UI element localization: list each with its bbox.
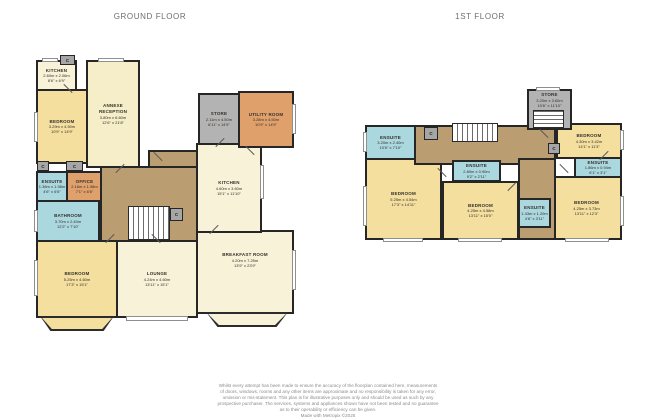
closet: C xyxy=(548,143,560,154)
staircase-ground xyxy=(128,206,170,240)
window xyxy=(620,130,624,150)
room-name: BEDROOM xyxy=(573,200,599,206)
window xyxy=(383,238,423,242)
window xyxy=(292,104,296,134)
closet-label: C xyxy=(175,212,178,217)
room-dim-imperial: 14'1" x 11'3" xyxy=(576,144,602,149)
room-dim-imperial: 6'11" x 14'9" xyxy=(206,122,232,127)
room-dim-imperial: 10'9" x 14'9" xyxy=(49,129,75,134)
floorplan-canvas: GROUND FLOOR 1ST FLOOR KITCHEN 2.60m x 2… xyxy=(0,0,656,420)
room-bedroom-left-1f: BEDROOM 5.25m x 4.54m 17'3" x 14'11" xyxy=(365,158,442,240)
room-name: BATHROOM xyxy=(54,213,82,219)
closet-label: C xyxy=(552,146,555,151)
room-name: KITCHEN xyxy=(216,180,242,186)
room-name: LOUNGE xyxy=(144,271,170,277)
room-dim-metric: 3.20m x 3.60m xyxy=(536,98,562,103)
window xyxy=(620,196,624,226)
window xyxy=(363,132,367,152)
closet: C xyxy=(170,208,183,221)
disclaimer: Whilst every attempt has been made to en… xyxy=(158,383,498,419)
room-dim-imperial: 6'1" x 3'1" xyxy=(585,170,611,175)
window xyxy=(565,238,609,242)
room-name: ENSUITE xyxy=(463,163,489,169)
closet: C xyxy=(37,161,49,171)
window xyxy=(260,165,264,199)
room-dim-imperial: 12'6" x 21'8" xyxy=(90,120,136,125)
window xyxy=(98,58,124,62)
closet-label: C xyxy=(429,131,432,136)
room-dim-imperial: 10'6" x 11'10" xyxy=(536,103,562,108)
room-office: OFFICE 2.16m x 1.98m 7'1" x 6'6" xyxy=(66,171,103,202)
room-ensuite-middle-1f: ENSUITE 2.80m x 0.90m 9'2" x 2'11" xyxy=(452,160,501,182)
staircase-store xyxy=(533,110,564,128)
room-bedroom-annexe: BEDROOM 3.29m x 4.50m 10'9" x 14'9" xyxy=(36,89,88,164)
closet: C xyxy=(60,55,75,65)
room-dim-imperial: 17'3" x 14'11" xyxy=(390,202,416,207)
room-name: BEDROOM xyxy=(576,133,602,139)
room-dim-imperial: 15'1" x 11'10" xyxy=(216,191,242,196)
room-dim-imperial: 13'11" x 15'0" xyxy=(467,213,493,218)
window xyxy=(536,87,560,91)
metropix-credit: Made with Metropix ©2025 xyxy=(158,413,498,419)
room-dim-imperial: 12'2" x 7'10" xyxy=(54,224,82,229)
closet-label: C xyxy=(41,164,44,169)
window xyxy=(34,260,38,296)
door-swing xyxy=(559,164,568,173)
room-name: BEDROOM xyxy=(390,191,416,197)
window xyxy=(458,238,502,242)
room-dim-imperial: 10'6" x 7'10" xyxy=(377,145,403,150)
window xyxy=(126,316,188,321)
staircase-1f xyxy=(452,123,498,142)
room-ensuite-left-1f: ENSUITE 3.20m x 2.40m 10'6" x 7'10" xyxy=(365,125,416,160)
room-dim-imperial: 13'11" x 15'1" xyxy=(144,282,170,287)
room-dim-imperial: 17'3" x 15'1" xyxy=(64,282,90,287)
room-annexe-reception: ANNEXE RECEPTION 3.80m x 6.60m 12'6" x 2… xyxy=(86,60,140,168)
window xyxy=(42,58,58,62)
first-floor-title: 1ST FLOOR xyxy=(390,12,570,21)
room-dim-imperial: 13'11" x 12'3" xyxy=(573,211,599,216)
room-name: ENSUITE xyxy=(521,205,547,211)
room-dim-imperial: 4'8" x 3'11" xyxy=(521,216,547,221)
room-ensuite-inner-1f: ENSUITE 1.43m x 1.20m 4'8" x 3'11" xyxy=(518,198,551,228)
window xyxy=(34,112,38,142)
room-bedroom-ground: BEDROOM 5.25m x 4.60m 17'3" x 15'1" xyxy=(36,240,118,318)
bay-window xyxy=(40,316,114,331)
closet-label: C xyxy=(66,58,69,63)
window xyxy=(292,250,296,290)
room-dim-imperial: 13'9" x 23'9" xyxy=(222,263,268,268)
room-dim-imperial: 8'6" x 6'9" xyxy=(43,78,69,83)
ground-floor-title: GROUND FLOOR xyxy=(60,12,240,21)
closet: C xyxy=(66,161,83,171)
room-lounge: LOUNGE 4.24m x 4.60m 13'11" x 15'1" xyxy=(116,240,198,318)
room-bathroom: BATHROOM 3.70m x 2.40m 12'2" x 7'10" xyxy=(36,200,100,242)
window xyxy=(363,186,367,226)
room-name: BREAKFAST ROOM xyxy=(222,252,268,258)
window xyxy=(34,210,38,232)
room-name: BEDROOM xyxy=(64,271,90,277)
room-ensuite-ground: ENSUITE 1.36m x 1.98m 4'6" x 6'6" xyxy=(36,171,68,202)
room-dim-imperial: 4'6" x 6'6" xyxy=(39,189,65,194)
room-bedroom-bottom-right-1f: BEDROOM 4.25m x 3.73m 13'11" x 12'3" xyxy=(551,176,622,240)
room-dim-imperial: 7'1" x 6'6" xyxy=(71,189,97,194)
closet-label: C xyxy=(73,164,76,169)
room-kitchen-main: KITCHEN 4.60m x 3.60m 15'1" x 11'10" xyxy=(196,143,262,233)
room-store-ground: STORE 2.11m x 4.50m 6'11" x 14'9" xyxy=(198,93,240,145)
room-dim-imperial: 9'2" x 2'11" xyxy=(463,174,489,179)
room-name: ANNEXE RECEPTION xyxy=(90,103,136,114)
room-utility: UTILITY ROOM 3.28m x 4.50m 10'9" x 14'9" xyxy=(238,91,294,148)
bay-window xyxy=(206,312,288,327)
closet: C xyxy=(424,127,438,140)
room-dim-imperial: 10'9" x 14'9" xyxy=(249,122,284,127)
room-breakfast: BREAKFAST ROOM 4.20m x 7.25m 13'9" x 23'… xyxy=(196,230,294,314)
room-ensuite-right-1f: ENSUITE 1.86m x 0.94m 6'1" x 3'1" xyxy=(574,157,622,178)
